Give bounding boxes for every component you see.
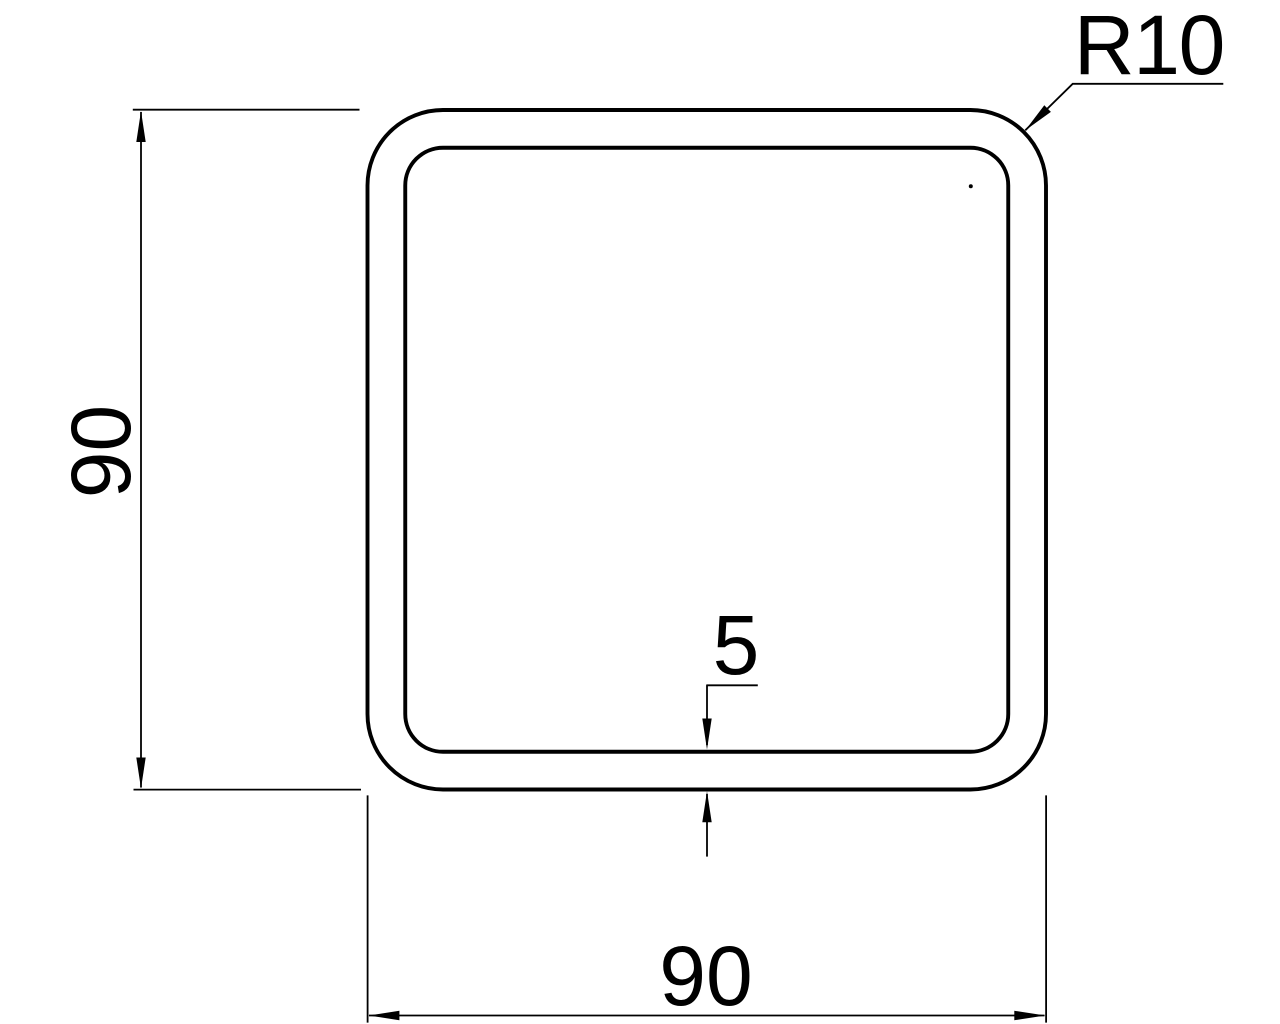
svg-text:5: 5 [713, 598, 760, 692]
svg-text:90: 90 [54, 405, 148, 498]
svg-text:R10: R10 [1074, 0, 1224, 92]
svg-text:90: 90 [659, 929, 752, 1023]
